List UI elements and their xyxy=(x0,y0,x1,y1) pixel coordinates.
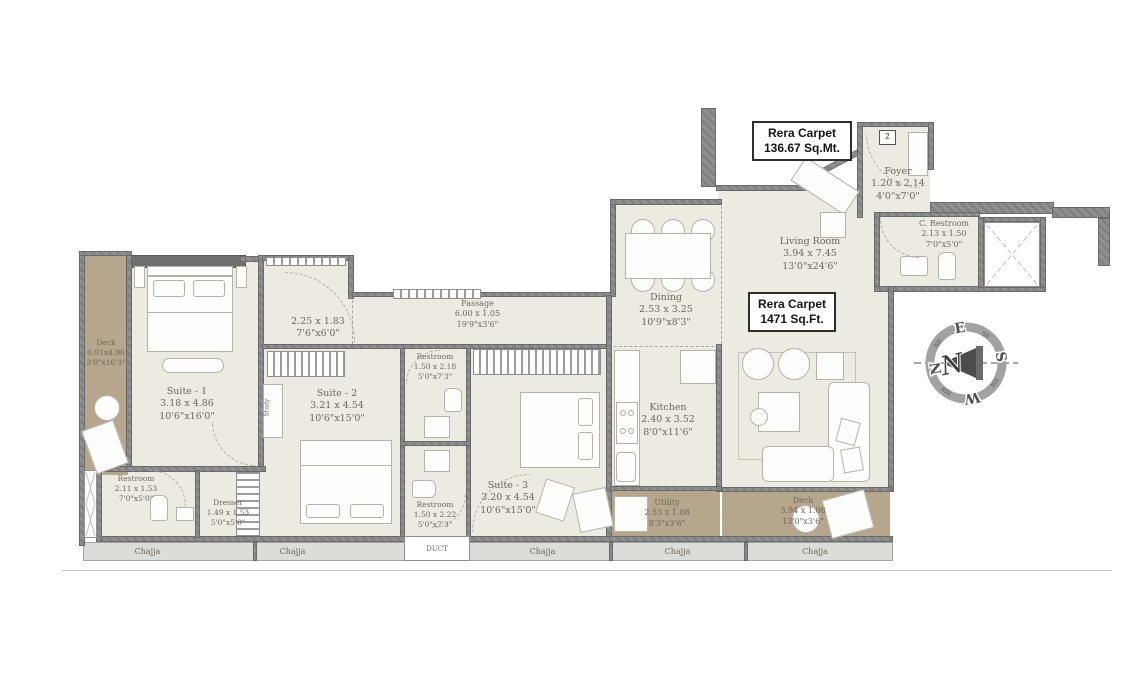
room-dim-m: 2.53 x 1.08 xyxy=(628,508,706,518)
pillow xyxy=(578,398,593,426)
room-label-restroom-1: Restroom 2.11 x 1.53 7'0"x5'0" xyxy=(100,474,172,503)
wardrobe xyxy=(473,349,601,375)
room-dim-ft: 8'3"x3'6" xyxy=(628,519,706,529)
wall-segment xyxy=(744,542,748,561)
room-dim-ft: 5'0"x5'0" xyxy=(196,518,260,528)
room-label-restroom-2: Restroom 1.50 x 2.18 5'0"x7'3" xyxy=(404,352,466,381)
duct-label: DUCT xyxy=(405,540,469,559)
opening-dashed xyxy=(724,492,725,536)
room-name: Living Room xyxy=(752,236,868,248)
room-label-deck-left: Deck 0.91x4.96 3'0"x16'3" xyxy=(84,338,128,367)
nightstand xyxy=(134,266,145,288)
wall-segment xyxy=(722,487,892,492)
room-name: Suite - 2 xyxy=(278,388,396,400)
room-dim-m: 2.25 x 1.83 xyxy=(270,316,366,328)
toilet xyxy=(938,252,956,280)
chajja-label: Chajja xyxy=(100,542,195,561)
washbasin xyxy=(900,256,928,276)
coffee-table-round xyxy=(750,408,768,426)
room-name: Foyer xyxy=(856,166,940,178)
side-table xyxy=(816,352,844,380)
room-name: Restroom xyxy=(404,352,466,362)
pillow xyxy=(153,280,185,297)
compass-w: W xyxy=(963,388,983,407)
wall-segment xyxy=(701,108,716,187)
kitchen-sink xyxy=(616,452,636,482)
room-dim-m: 3.21 x 4.54 xyxy=(278,400,396,412)
opening-dashed xyxy=(721,206,722,344)
room-name: Deck xyxy=(760,496,846,506)
room-dim-ft: 8'0"x11'6" xyxy=(618,427,718,439)
wall-segment xyxy=(610,199,722,205)
round-chair xyxy=(778,348,810,380)
duct-x-icon xyxy=(85,471,96,537)
room-name: Passage xyxy=(420,299,535,309)
washbasin xyxy=(176,507,194,521)
room-dim-ft: 13'0"x24'6" xyxy=(752,261,868,273)
room-dim-m: 3.20 x 4.54 xyxy=(448,492,568,504)
room-dim-ft: 3'0"x16'3" xyxy=(84,358,128,368)
room-dim-m: 6.00 x 1.05 xyxy=(420,309,535,319)
round-chair xyxy=(742,348,774,380)
wardrobe xyxy=(267,351,345,377)
wall-segment xyxy=(610,199,616,297)
room-name: Restroom xyxy=(404,500,466,510)
room-dim-ft: 13'0"x3'6" xyxy=(760,517,846,527)
wall-segment xyxy=(79,251,132,256)
dining-table xyxy=(625,233,711,279)
room-label-lobby: 2.25 x 1.83 7'6"x6'0" xyxy=(270,316,366,341)
room-label-foyer: Foyer 1.20 x 2.14 4'0"x7'0" xyxy=(856,166,940,203)
bed-blanket xyxy=(147,312,233,352)
duct-bottom: DUCT xyxy=(404,536,470,561)
room-dim-ft: 7'0"x5'0" xyxy=(894,240,994,250)
room-name: Kitchen xyxy=(618,402,718,414)
window xyxy=(393,289,481,299)
chajja-label: Chajja xyxy=(630,542,725,561)
chajja-label: Chajja xyxy=(245,542,340,561)
room-name: Deck xyxy=(84,338,128,348)
room-dim-ft: 10'9"x8'3" xyxy=(616,317,716,329)
room-dim-m: 1.49 x 1.53 xyxy=(196,508,260,518)
room-name: Suite - 3 xyxy=(448,480,568,492)
bed-headboard xyxy=(147,266,233,276)
room-label-suite-2: Suite - 2 3.21 x 4.54 10'6"x15'0" xyxy=(278,388,396,425)
wall-segment xyxy=(1098,218,1110,266)
rera-line: Rera Carpet xyxy=(760,126,844,141)
compass-needle-base xyxy=(976,346,983,380)
bed-blanket xyxy=(300,440,392,466)
room-name: Utility xyxy=(628,498,706,508)
opening-dashed xyxy=(614,346,714,347)
window xyxy=(266,257,346,266)
floor-plan-canvas: Chajja Chajja Chajja Chajja Chajja DUCT xyxy=(0,0,1133,682)
rera-line: 136.67 Sq.Mt. xyxy=(760,141,844,156)
room-label-dining: Dining 2.53 x 3.25 10'9"x8'3" xyxy=(616,292,716,329)
room-label-utility: Utility 2.53 x 1.08 8'3"x3'6" xyxy=(628,498,706,529)
rera-line: 1471 Sq.Ft. xyxy=(756,312,828,327)
cushion xyxy=(840,446,864,473)
room-dim-m: 2.40 x 3.52 xyxy=(618,414,718,426)
bench xyxy=(162,358,224,373)
room-dim-m: 2.11 x 1.53 xyxy=(100,484,172,494)
duct-left xyxy=(84,470,97,538)
room-dim-m: 3.94 x 1.08 xyxy=(760,506,846,516)
room-dim-m: 2.13 x 1.50 xyxy=(894,229,994,239)
room-dim-m: 1.20 x 2.14 xyxy=(856,178,940,190)
compass-e: E xyxy=(953,320,966,338)
room-dim-m: 2.53 x 3.25 xyxy=(616,304,716,316)
room-dim-ft: 7'6"x6'0" xyxy=(270,328,366,340)
room-label-deck-bottom: Deck 3.94 x 1.08 13'0"x3'6" xyxy=(760,496,846,527)
wall-segment xyxy=(609,542,613,561)
room-dim-ft: 4'0"x7'0" xyxy=(856,191,940,203)
room-dim-ft: 7'0"x5'0" xyxy=(100,494,172,504)
room-label-kitchen: Kitchen 2.40 x 3.52 8'0"x11'6" xyxy=(618,402,718,439)
pillow xyxy=(350,504,384,518)
wall-segment xyxy=(400,441,471,446)
room-dim-m: 1.50 x 2.22 xyxy=(404,510,466,520)
washbasin xyxy=(424,416,450,438)
room-name: Restroom xyxy=(100,474,172,484)
wall-segment xyxy=(610,486,722,491)
room-dim-m: 0.91x4.96 xyxy=(84,348,128,358)
wall-segment xyxy=(716,185,806,191)
room-dim-ft: 5'0"x7'3" xyxy=(404,372,466,382)
room-dim-m: 3.94 x 7.45 xyxy=(752,248,868,260)
room-label-passage: Passage 6.00 x 1.05 19'9"x3'6" xyxy=(420,299,535,330)
sofa xyxy=(762,446,834,482)
room-name: Dining xyxy=(616,292,716,304)
rera-line: Rera Carpet xyxy=(756,297,828,312)
room-name: Suite - 1 xyxy=(128,386,246,398)
room-label-restroom-3: Restroom 1.50 x 2.22 5'0"x7'3" xyxy=(404,500,466,529)
wall-segment xyxy=(874,212,980,217)
wall-segment xyxy=(1052,207,1110,218)
pillow xyxy=(578,432,593,460)
room-label-dresser: Dresser 1.49 x 1.53 5'0"x5'0" xyxy=(196,498,260,527)
rera-carpet-box-sqft: Rera Carpet 1471 Sq.Ft. xyxy=(748,292,836,332)
room-dim-ft: 10'6"x15'0" xyxy=(278,413,396,425)
wall-segment xyxy=(857,122,934,127)
deck-table xyxy=(94,395,120,421)
study-label: Study xyxy=(263,399,270,417)
chajja-label: Chajja xyxy=(765,542,865,561)
wall-segment xyxy=(874,212,880,291)
room-dim-ft: 5'0"x7'3" xyxy=(404,520,466,530)
pillow xyxy=(193,280,225,297)
room-dim-m: 1.50 x 2.18 xyxy=(404,362,466,372)
room-dim-ft: 10'6"x16'0" xyxy=(128,411,246,423)
pillow xyxy=(306,504,340,518)
room-label-c-restroom: C. Restroom 2.13 x 1.50 7'0"x5'0" xyxy=(894,219,994,250)
washbasin xyxy=(424,450,450,472)
room-dim-m: 3.18 x 4.86 xyxy=(128,398,246,410)
room-label-suite-3: Suite - 3 3.20 x 4.54 10'6"x15'0" xyxy=(448,480,568,517)
wall-segment xyxy=(888,286,894,492)
chajja-label: Chajja xyxy=(495,542,590,561)
room-dim-ft: 10'6"x15'0" xyxy=(448,505,568,517)
room-name: C. Restroom xyxy=(894,219,994,229)
wall-segment xyxy=(928,122,934,170)
wall-segment xyxy=(1040,217,1046,292)
kitchen-cabinet xyxy=(680,350,716,384)
compass-rose: N E S W NE SE SW NW N xyxy=(914,306,1018,418)
compass-s: S xyxy=(992,351,1010,364)
room-label-living: Living Room 3.94 x 7.45 13'0"x24'6" xyxy=(752,236,868,273)
compass-center-letter: N xyxy=(937,348,968,383)
toilet xyxy=(444,388,462,412)
entry-table xyxy=(820,212,846,238)
room-name: Dresser xyxy=(196,498,260,508)
baseline xyxy=(62,570,1112,571)
entry-number-badge: 2 xyxy=(879,130,896,145)
wall-segment xyxy=(352,292,614,297)
room-dim-ft: 19'9"x3'6" xyxy=(420,320,535,330)
nightstand xyxy=(236,266,247,288)
rera-carpet-box-sqmt: Rera Carpet 136.67 Sq.Mt. xyxy=(752,121,852,161)
room-label-suite-1: Suite - 1 3.18 x 4.86 10'6"x16'0" xyxy=(128,386,246,423)
